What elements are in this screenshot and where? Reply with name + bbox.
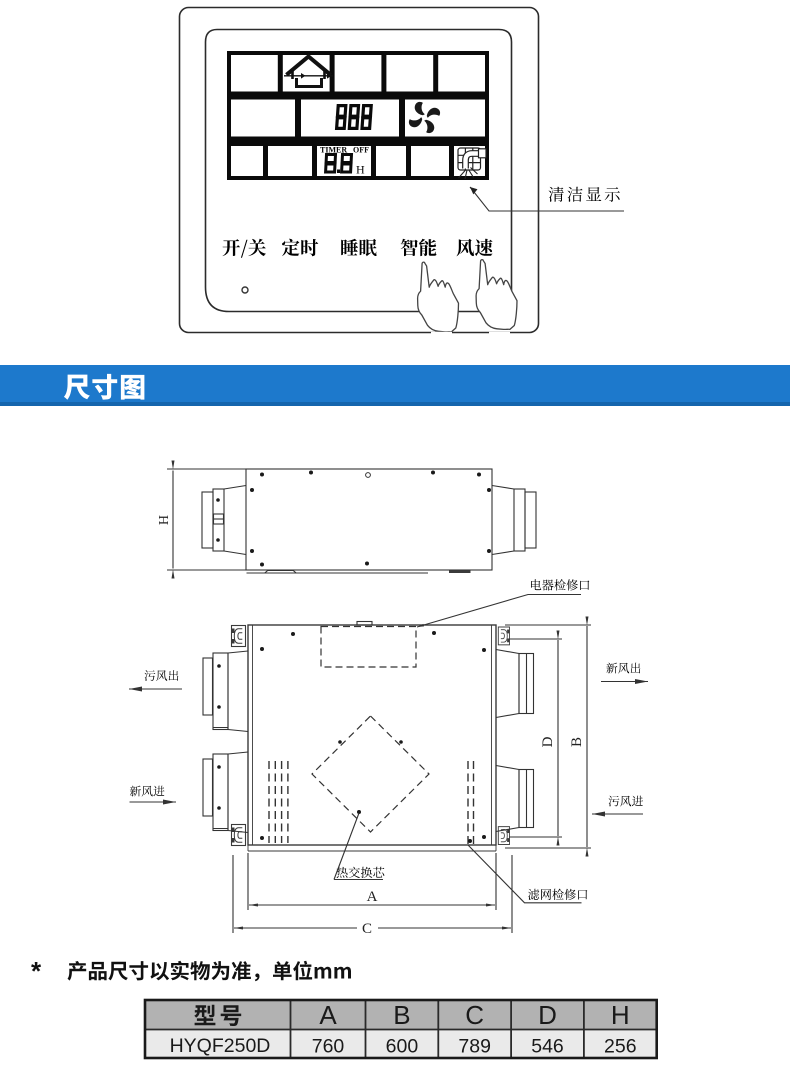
svg-text:*: * — [31, 956, 42, 986]
svg-text:A: A — [367, 889, 378, 905]
svg-text:B: B — [393, 1000, 410, 1030]
svg-text:H: H — [611, 1000, 630, 1030]
svg-text:OFF: OFF — [353, 146, 369, 155]
svg-text:D: D — [538, 1000, 557, 1030]
svg-text:C: C — [362, 921, 372, 937]
svg-text:C: C — [465, 1000, 484, 1030]
svg-text:A: A — [319, 1000, 337, 1030]
svg-text:600: 600 — [386, 1036, 419, 1058]
svg-text:256: 256 — [604, 1036, 637, 1058]
svg-text:H: H — [356, 163, 365, 177]
svg-text:789: 789 — [458, 1036, 491, 1058]
svg-text:760: 760 — [312, 1036, 345, 1058]
svg-text:H: H — [157, 515, 172, 525]
svg-text:D: D — [540, 736, 556, 747]
svg-text:B: B — [569, 737, 585, 747]
svg-text:546: 546 — [531, 1036, 564, 1058]
svg-text:HYQF250D: HYQF250D — [170, 1035, 271, 1057]
